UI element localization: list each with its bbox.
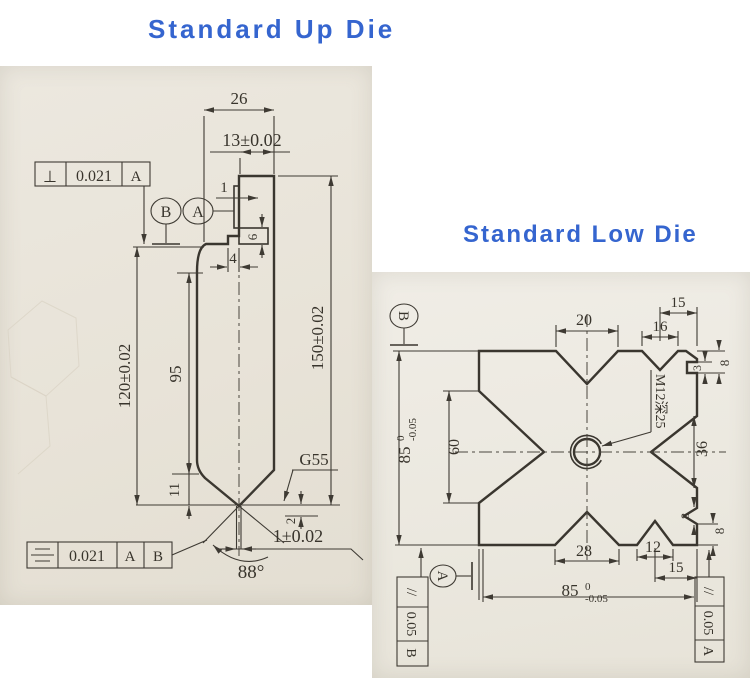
dim-8-mid: 8	[678, 513, 692, 519]
datum-target-a: A	[183, 198, 234, 224]
up-die-dimension-texts: 26 13±0.02 1 6 4 120±0.02 95 150±0.02 11…	[115, 89, 329, 583]
dim-1: 1	[220, 180, 228, 196]
datum-target-b: B	[151, 198, 181, 244]
dim-120: 120±0.02	[115, 344, 134, 409]
dim-85-left-tol-upper: 0	[395, 435, 407, 441]
dim-85-left: 85	[395, 447, 414, 464]
dim-6: 6	[245, 233, 260, 240]
up-die-drawing: ⊥ 0.021 A B A	[8, 89, 363, 583]
fcf-left-datum: B	[403, 648, 418, 657]
paper-texture	[8, 301, 79, 474]
note-g55: G55	[299, 450, 328, 469]
tang-plate	[234, 186, 239, 228]
fcf-top-tolerance: 0.021	[76, 168, 112, 185]
fcf-right-tolerance: 0.05	[700, 611, 715, 636]
parallelism-icon-left: //	[403, 588, 419, 597]
dim-angle-88: 88°	[238, 562, 265, 583]
fcf-left-tolerance: 0.05	[403, 612, 418, 637]
dim-26: 26	[231, 89, 248, 108]
fcf-bottom-datum-b: B	[153, 549, 163, 565]
fcf-symmetry: 0.021 A B	[27, 540, 207, 568]
dim-95: 95	[166, 366, 185, 383]
datum-b-label: B	[161, 204, 172, 221]
fcf-parallelism-left: // 0.05 B	[397, 548, 428, 666]
dim-60: 60	[446, 439, 463, 455]
dim-8-low: 8	[712, 528, 727, 535]
dim-15-top: 15	[671, 295, 686, 311]
dim-85-bottom-tol-upper: 0	[585, 581, 591, 593]
dim-85-bottom: 85	[562, 581, 579, 600]
dim-12: 12	[645, 539, 661, 556]
dim-85-bottom-tol-lower: -0.05	[585, 593, 608, 605]
datum-target-a-low: A	[430, 562, 472, 590]
note-thread: M12深25	[652, 374, 668, 428]
parallelism-icon-right: //	[700, 587, 716, 596]
dim-3: 3	[690, 365, 704, 371]
fcf-right-datum: A	[700, 646, 715, 657]
datum-a-label: A	[192, 204, 204, 221]
screenshot-root: Standard Up Die Standard Low Die	[0, 0, 750, 678]
datum-a-low-label: A	[434, 571, 450, 582]
drawing-canvas: ⊥ 0.021 A B A	[0, 0, 750, 678]
low-die-dimension-texts: 20 16 15 3 8 36 8 8 12 28 15 85 0 -0.05 …	[395, 295, 732, 605]
dim-2: 2	[283, 518, 298, 525]
dim-13: 13±0.02	[222, 130, 281, 150]
fcf-bottom-datum-a: A	[125, 549, 136, 565]
dim-85-left-tol-lower: -0.05	[407, 418, 419, 441]
symmetry-icon	[31, 549, 54, 561]
low-die-dimension-lines	[393, 307, 725, 602]
perpendicularity-icon: ⊥	[43, 167, 57, 186]
datum-target-b-low: B	[390, 304, 418, 345]
dim-8-top: 8	[717, 360, 732, 367]
dim-16: 16	[653, 319, 669, 335]
fcf-parallelism-right: // 0.05 A	[695, 550, 724, 662]
dim-11: 11	[167, 483, 183, 497]
dim-28: 28	[576, 543, 592, 560]
dim-tip-1: 1±0.02	[273, 526, 323, 546]
dim-150: 150±0.02	[308, 306, 327, 371]
low-die-drawing: B A // 0.05 B //	[390, 295, 732, 666]
fcf-perpendicularity: ⊥ 0.021 A	[35, 162, 150, 244]
dim-20: 20	[576, 312, 592, 329]
dim-4: 4	[229, 251, 237, 267]
dim-15-bottom: 15	[669, 560, 684, 576]
fcf-top-datum: A	[131, 169, 142, 185]
datum-b-low-label: B	[395, 311, 411, 321]
fcf-bottom-tolerance: 0.021	[69, 548, 105, 565]
dim-36: 36	[694, 441, 711, 457]
